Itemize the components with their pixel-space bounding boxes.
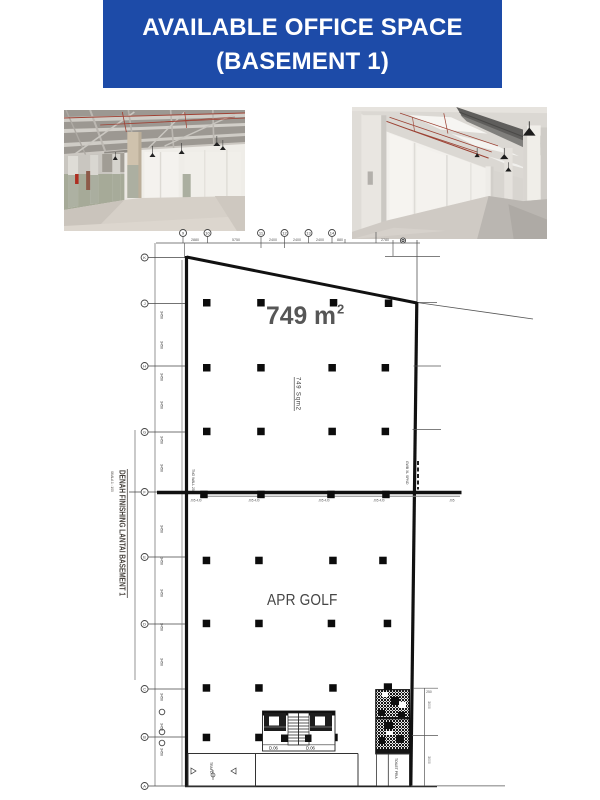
svg-text:2400: 2400 [269,238,277,242]
svg-text:2400: 2400 [293,238,301,242]
svg-text:250: 250 [426,690,432,694]
svg-text:3450: 3450 [160,748,164,756]
svg-text:J05 4J0: J05 4J0 [318,499,329,503]
svg-text:3450: 3450 [160,341,164,349]
svg-text:J05 4J0: J05 4J0 [190,499,201,503]
svg-text:DENAH FINISHING LANTAI BASEMEN: DENAH FINISHING LANTAI BASEMENT 1 [118,470,127,596]
svg-text:J: J [144,301,146,306]
svg-text:D.06: D.06 [306,746,316,751]
svg-text:2400: 2400 [316,238,324,242]
svg-text:3000: 3000 [427,701,431,709]
svg-text:C: C [143,687,146,692]
svg-text:J05 4J0: J05 4J0 [373,499,384,503]
svg-text:3450: 3450 [160,723,164,731]
svg-text:B: B [143,735,146,740]
svg-text:3450: 3450 [160,436,164,444]
svg-text:880: 880 [337,238,343,242]
svg-text:J05: J05 [449,499,454,503]
svg-text:K: K [143,255,146,260]
svg-text:J05 4J0: J05 4J0 [248,499,259,503]
svg-text:APR GOLF: APR GOLF [267,592,338,609]
svg-text:3450: 3450 [160,373,164,381]
svg-text:TRAFO: TRAFO [209,762,213,774]
svg-text:749 Sqm2: 749 Sqm2 [295,377,301,411]
svg-text:TNG WALL 250: TNG WALL 250 [191,469,195,493]
svg-text:2: 2 [337,302,344,317]
svg-text:TOILET PRIA: TOILET PRIA [394,758,398,779]
svg-text:2780: 2780 [381,238,389,242]
svg-text:3000: 3000 [427,756,431,764]
svg-text:D.06: D.06 [269,746,279,751]
svg-text:E: E [143,555,146,560]
svg-text:A: A [143,784,146,789]
svg-text:2880: 2880 [191,238,199,242]
svg-text:3450: 3450 [160,658,164,666]
svg-text:3450: 3450 [160,525,164,533]
svg-text:D: D [143,622,146,627]
svg-text:12: 12 [282,231,287,236]
svg-text:10: 10 [205,231,210,236]
svg-text:3450: 3450 [160,401,164,409]
svg-text:13: 13 [306,231,311,236]
svg-text:SKALA 1 : 100: SKALA 1 : 100 [110,471,114,492]
svg-text:H: H [143,364,146,369]
svg-text:14: 14 [330,231,335,236]
svg-text:3450: 3450 [160,623,164,631]
svg-text:3450: 3450 [160,311,164,319]
svg-text:3450: 3450 [160,464,164,472]
svg-text:749 m: 749 m [266,302,336,330]
svg-text:3450: 3450 [160,693,164,701]
svg-text:3450: 3450 [160,589,164,597]
svg-text:3450: 3450 [160,557,164,565]
svg-text:5750: 5750 [232,238,240,242]
svg-text:G: G [143,430,146,435]
svg-text:GWB XL SPND: GWB XL SPND [405,461,409,485]
